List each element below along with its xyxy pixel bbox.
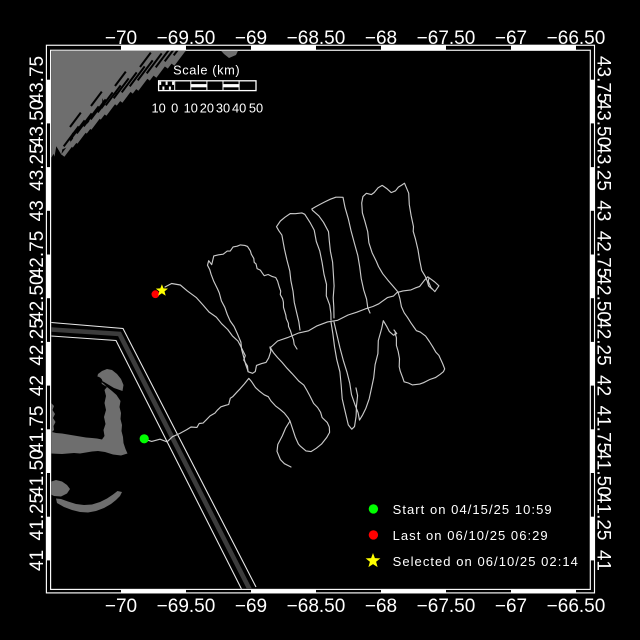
svg-text:41: 41 (27, 550, 48, 571)
svg-text:40: 40 (232, 101, 246, 116)
svg-text:43.75: 43.75 (593, 56, 614, 104)
svg-text:−67: −67 (495, 28, 527, 49)
svg-text:41.25: 41.25 (27, 493, 48, 541)
svg-text:Last on 06/10/25 06:29: Last on 06/10/25 06:29 (393, 528, 549, 543)
svg-text:41.25: 41.25 (593, 493, 614, 541)
svg-text:Start on 04/15/25 10:59: Start on 04/15/25 10:59 (393, 502, 553, 517)
svg-text:43.25: 43.25 (593, 143, 614, 191)
svg-text:−69: −69 (235, 596, 267, 617)
svg-text:Selected on 06/10/25 02:14: Selected on 06/10/25 02:14 (393, 554, 579, 569)
svg-text:−69.50: −69.50 (157, 596, 216, 617)
svg-text:41: 41 (593, 550, 614, 571)
svg-text:42: 42 (27, 375, 48, 396)
svg-text:43.50: 43.50 (593, 100, 614, 148)
svg-text:10: 10 (151, 101, 165, 116)
svg-text:43: 43 (27, 200, 48, 221)
svg-text:43: 43 (593, 200, 614, 221)
svg-text:43.25: 43.25 (27, 143, 48, 191)
svg-text:42.75: 42.75 (593, 231, 614, 279)
svg-text:20: 20 (200, 101, 214, 116)
svg-text:0: 0 (171, 101, 178, 116)
svg-text:43.75: 43.75 (27, 56, 48, 104)
svg-text:41.75: 41.75 (27, 406, 48, 454)
svg-text:41.50: 41.50 (27, 449, 48, 497)
svg-text:43.50: 43.50 (27, 100, 48, 148)
svg-text:−68: −68 (365, 28, 397, 49)
svg-text:42.25: 42.25 (27, 318, 48, 366)
svg-text:Scale (km): Scale (km) (173, 62, 240, 77)
svg-text:41.50: 41.50 (593, 449, 614, 497)
svg-text:30: 30 (216, 101, 230, 116)
svg-text:−70: −70 (105, 596, 137, 617)
svg-text:−69.50: −69.50 (157, 28, 216, 49)
svg-text:10: 10 (184, 101, 198, 116)
svg-text:−66.50: −66.50 (547, 596, 606, 617)
svg-text:41.75: 41.75 (593, 406, 614, 454)
svg-text:42.50: 42.50 (593, 274, 614, 322)
svg-text:−69: −69 (235, 28, 267, 49)
svg-text:−66.50: −66.50 (547, 28, 606, 49)
svg-text:−68: −68 (365, 596, 397, 617)
svg-text:42: 42 (593, 375, 614, 396)
svg-text:50: 50 (249, 101, 263, 116)
svg-text:42.25: 42.25 (593, 318, 614, 366)
svg-text:42.50: 42.50 (27, 274, 48, 322)
svg-text:−70: −70 (105, 28, 137, 49)
svg-text:−68.50: −68.50 (287, 596, 346, 617)
svg-text:42.75: 42.75 (27, 231, 48, 279)
svg-text:−67: −67 (495, 596, 527, 617)
svg-text:−68.50: −68.50 (287, 28, 346, 49)
svg-text:−67.50: −67.50 (417, 28, 476, 49)
svg-text:−67.50: −67.50 (417, 596, 476, 617)
